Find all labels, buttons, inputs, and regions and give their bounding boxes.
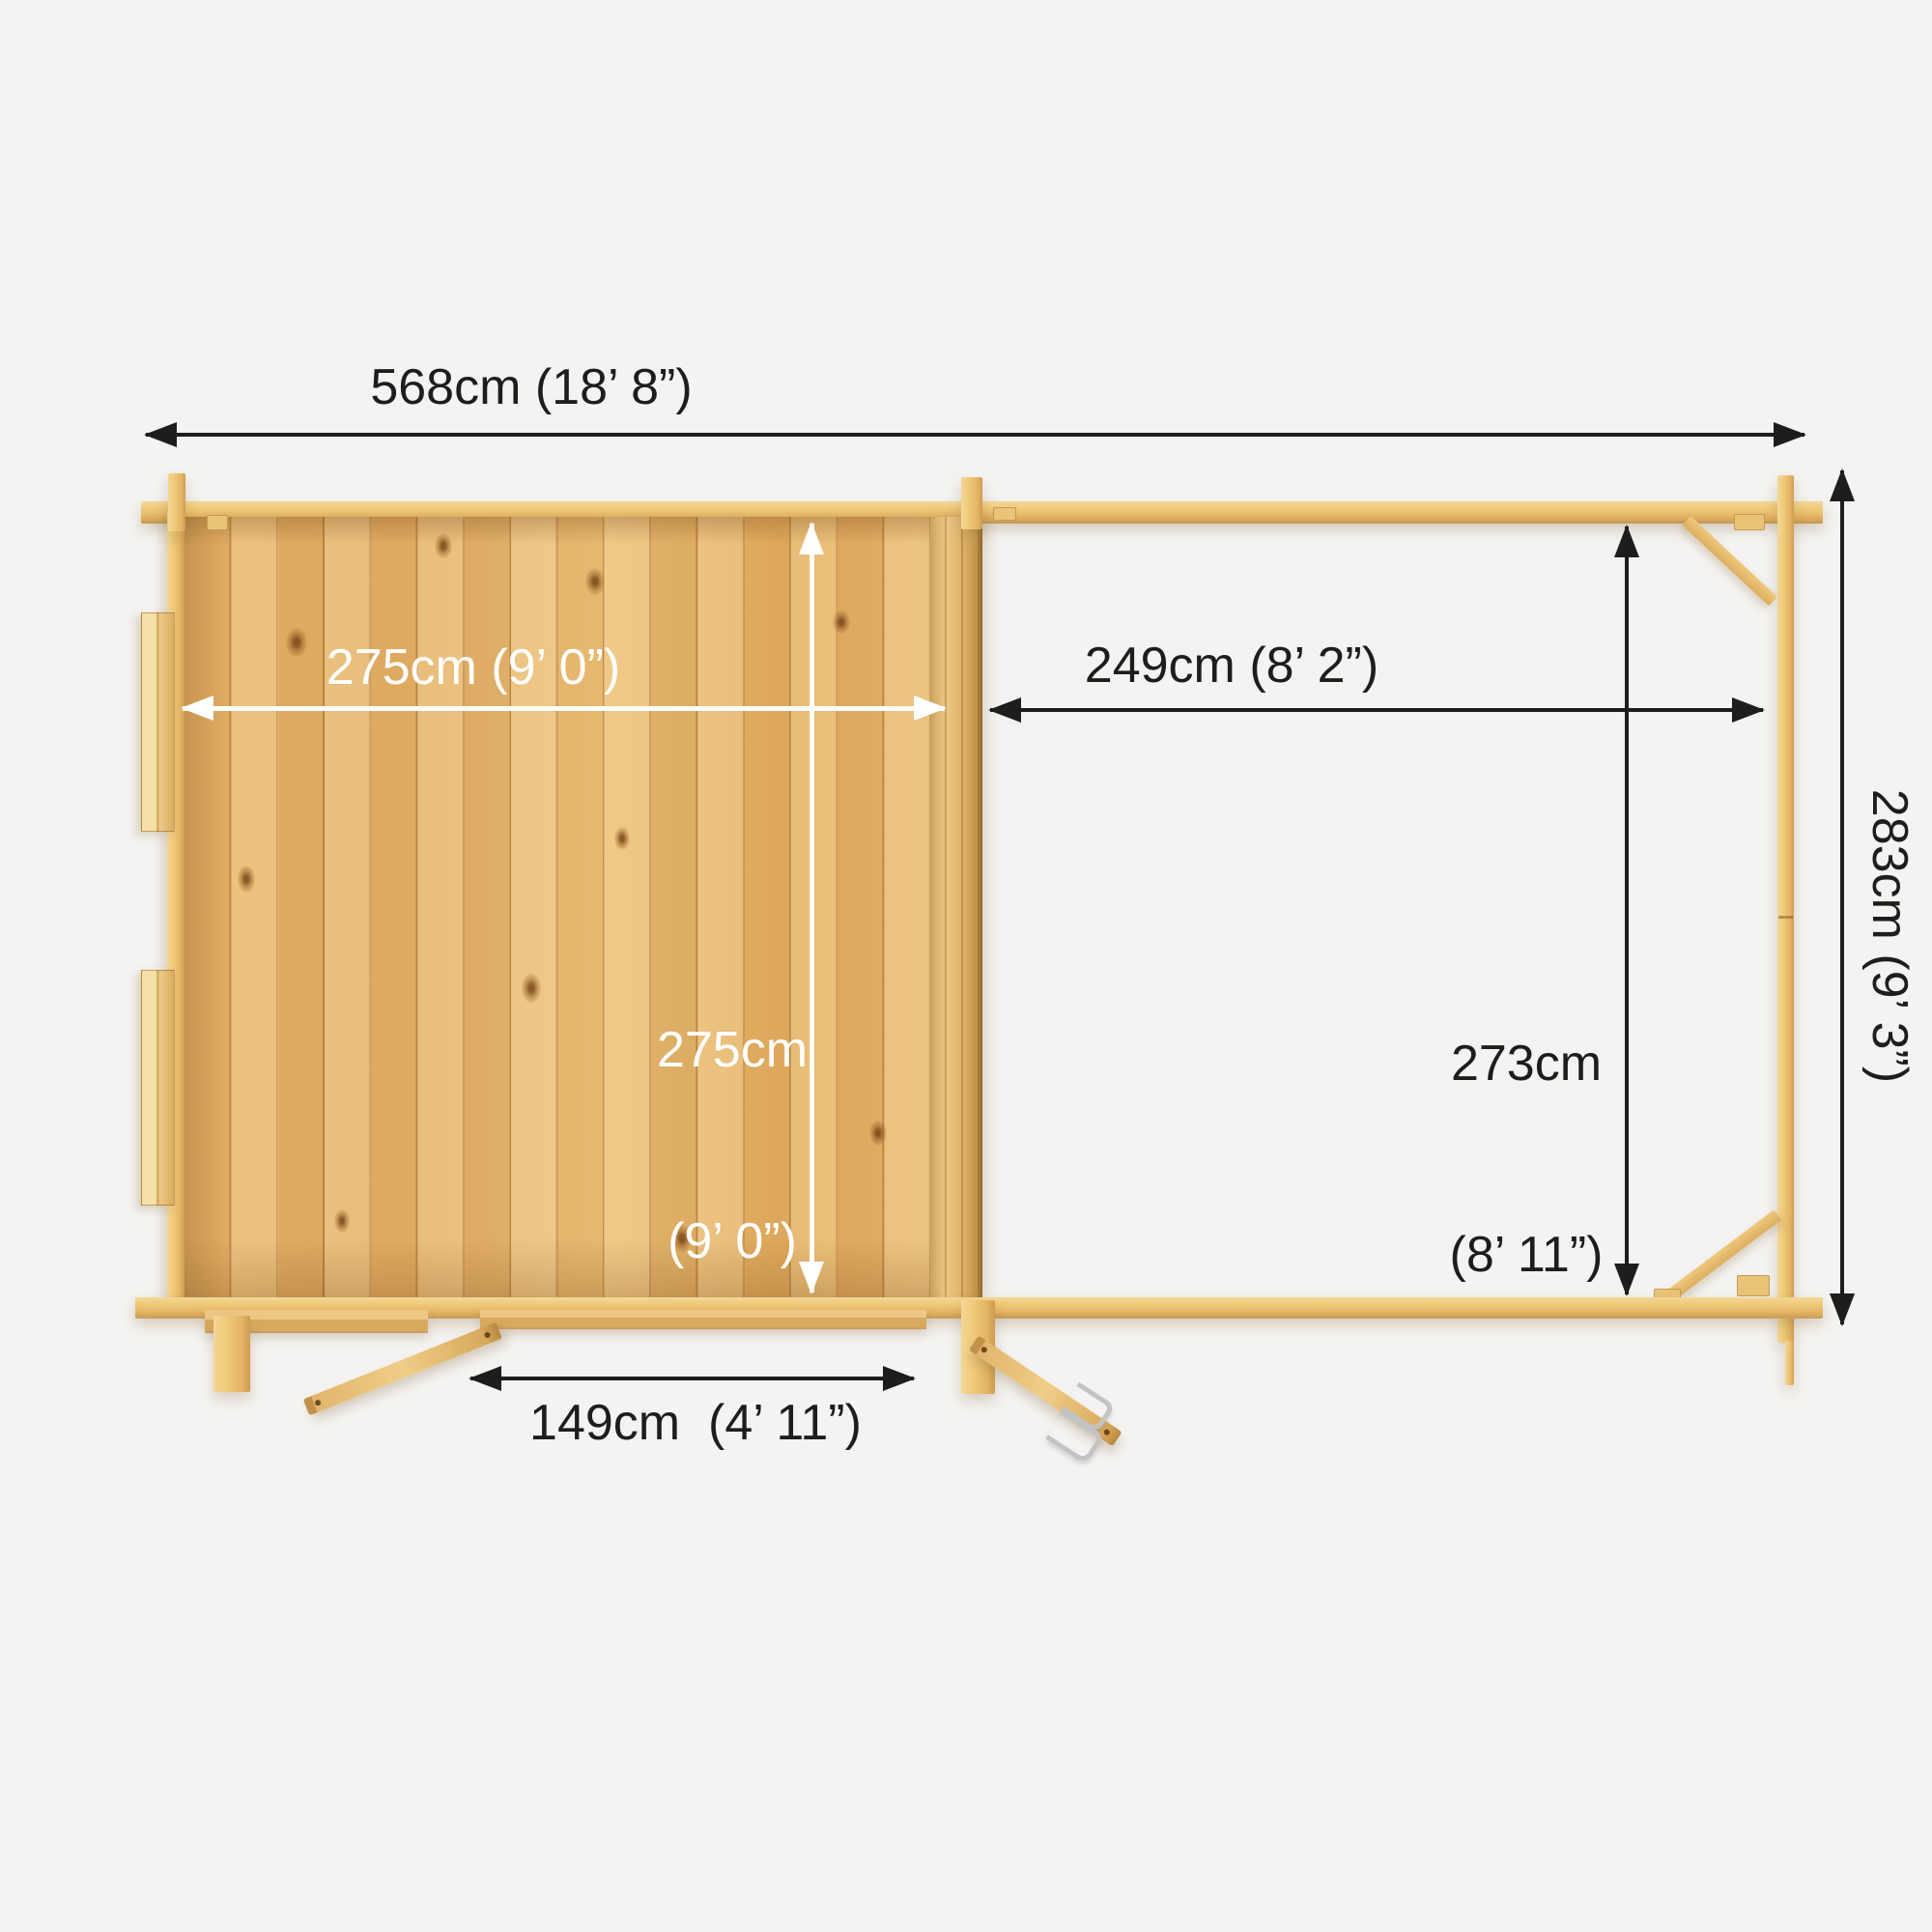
front-post-left [213,1316,250,1392]
dimension-label-line: 273cm [1381,1032,1671,1095]
dimension-label-veranda-depth: 273cm (8’ 11”) [1381,904,1671,1414]
dimension-arrow-overall-width [144,421,1806,448]
dimension-label-veranda-width: 249cm (8’ 2”) [1043,638,1420,694]
arrowhead-right [1732,697,1765,723]
dimension-label-overall-depth: 283cm (9’ 3”) [1863,743,1918,1129]
post-joint-seam [1778,916,1793,919]
dimension-label-overall-width: 568cm (18’ 8”) [241,359,821,415]
side-window-lower [141,970,175,1206]
wood-knot [435,533,452,558]
corner-post-top-left [168,473,185,531]
cabin-veranda-junction-post [961,477,982,529]
beam-joint-block [993,507,1016,521]
arrowhead-down [1830,1293,1855,1326]
dimension-label-line: 275cm [587,1018,877,1082]
brace-mount-block [1734,514,1765,530]
veranda-post-foot [1785,1341,1794,1385]
wood-knot [833,611,850,634]
arrowhead-right [1774,422,1806,447]
side-window-upper [141,612,175,832]
dimension-label-line: (9’ 0”) [587,1209,877,1273]
dimension-label-line: (8’ 11”) [1381,1223,1671,1287]
arrowhead-right [914,696,947,721]
wood-knot [238,866,255,893]
dimension-plan-diagram: 568cm (18’ 8”) 275cm (9’ 0”) 249cm (8’ 2… [0,0,1932,1932]
dimension-arrow-veranda-width [988,696,1765,724]
dimension-arrow-overall-depth [1829,469,1856,1326]
dimension-label-door-opening: 149cm (4’ 11”) [444,1395,947,1451]
arrow-line [990,708,1763,712]
dimension-arrow-cabin-width [181,695,947,722]
wood-knot [585,568,605,595]
wood-knot [614,827,630,850]
dimension-label-cabin-depth: 275cm (9’ 0”) [587,891,877,1401]
arrowhead-right [883,1366,916,1391]
cabin-right-wall [930,517,982,1298]
wood-knot [334,1209,350,1233]
arrow-line [146,433,1804,437]
dimension-label-cabin-width: 275cm (9’ 0”) [203,639,744,696]
veranda-right-post [1777,475,1794,1343]
brace-mount-block [1737,1275,1770,1296]
beam-joint-block [207,515,228,530]
wood-knot [522,974,541,1003]
arrow-line [183,706,945,711]
arrow-line [1840,470,1844,1324]
